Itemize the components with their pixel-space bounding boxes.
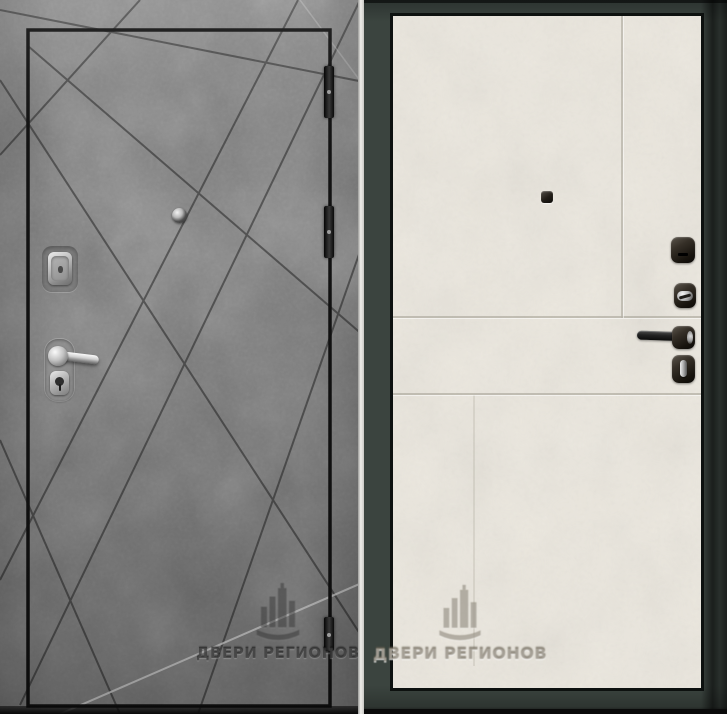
handle-rosette [48,346,68,366]
hinge [324,66,334,118]
door-bottom-shadow [0,706,358,714]
keyhole-slot [678,253,688,256]
handle-rosette [672,326,695,349]
plaster-texture [393,16,701,688]
door-interior-side: ДВЕРИ РЕГИОНОВ [364,0,727,714]
door-frame-top [364,0,727,3]
door-leaf [393,16,701,688]
keyhole [58,266,63,273]
chrome-glint [687,331,693,344]
thumbturn-lock [672,355,695,383]
hinge-pin [327,633,331,637]
door-frame-bottom [364,709,727,714]
peephole [541,191,553,203]
thumbturn-knob [680,360,687,377]
door-product-photo: ДВЕРИ РЕГИОНОВ [0,0,727,714]
hinge-pin [327,90,331,94]
lock-escutcheon [671,237,695,263]
thumbturn-lock [674,283,696,308]
hinge-pin [327,230,331,234]
hinge [324,617,334,651]
door-exterior-side: ДВЕРИ РЕГИОНОВ [0,0,358,714]
peephole [172,208,187,223]
door-frame-shadow [701,0,727,714]
keyhole-slot [59,384,62,391]
hinge [324,206,334,258]
